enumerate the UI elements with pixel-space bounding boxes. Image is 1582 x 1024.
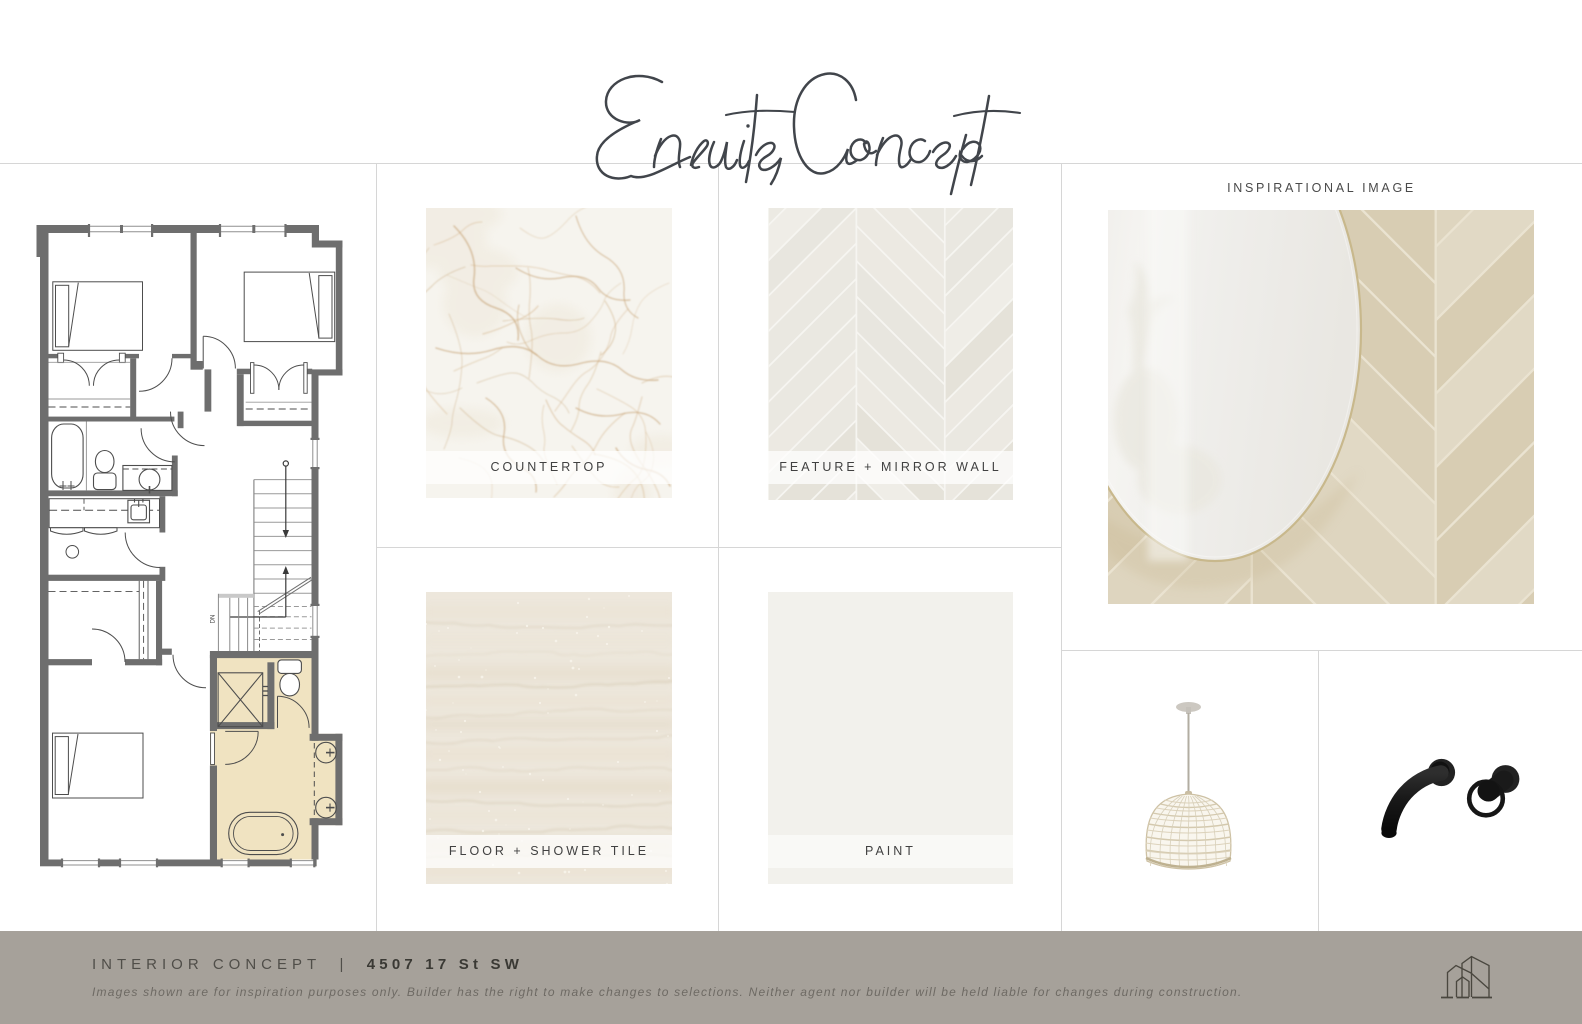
svg-text:DN: DN <box>211 615 217 624</box>
